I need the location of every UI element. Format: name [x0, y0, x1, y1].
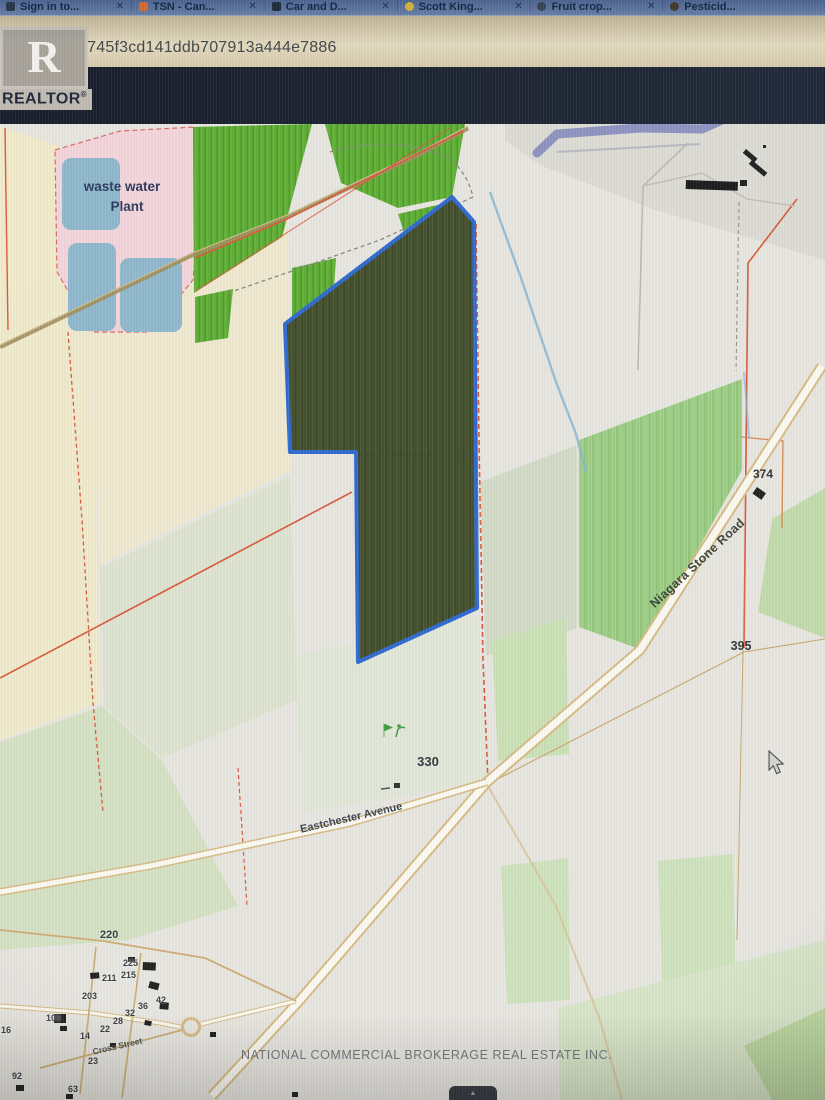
tab-favicon-icon	[537, 2, 546, 11]
realtor-r-glyph: R	[27, 34, 60, 80]
waste-water-plant-area	[55, 127, 202, 332]
tab-label: Car and D...	[286, 1, 347, 13]
house-number: 23	[88, 1056, 98, 1066]
tab-favicon-icon	[272, 2, 281, 11]
browser-tab[interactable]: Sign in to... ✕	[0, 0, 130, 15]
pond	[120, 258, 182, 332]
browser-tab[interactable]: Scott King... ✕	[399, 0, 529, 15]
lot-number-330: 330	[417, 754, 439, 769]
browser-tab[interactable]: TSN - Can... ✕	[133, 0, 263, 15]
tab-favicon-icon	[6, 2, 15, 11]
browser-url-bar[interactable]: ml?id=4500745f3cd141ddb707913a444e7886	[0, 15, 825, 68]
house-number: 92	[12, 1071, 22, 1081]
waste-water-label-2: Plant	[110, 199, 144, 214]
screen-photo: waste water Plant 374 395 330 Niagara St…	[0, 0, 825, 1100]
tab-favicon-icon	[405, 2, 414, 11]
waste-water-label: waste water	[83, 179, 161, 194]
bottom-collapsed-tab[interactable]: ▲	[449, 1086, 497, 1100]
house-number: 42	[156, 995, 166, 1005]
tab-close-icon[interactable]: ✕	[514, 1, 522, 12]
pond	[68, 243, 116, 331]
house-number: 28	[113, 1016, 123, 1026]
lot-number-374: 374	[753, 467, 773, 481]
realtor-logo-square: R	[0, 27, 88, 89]
house-number: 36	[138, 1001, 148, 1011]
realtor-wordmark-text: REALTOR	[2, 90, 81, 107]
house-number: 225	[123, 958, 138, 968]
map-canvas[interactable]: waste water Plant 374 395 330 Niagara St…	[0, 0, 825, 1100]
house-number: 211	[102, 973, 117, 983]
house-number: 16	[1, 1025, 11, 1035]
tab-close-icon[interactable]: ✕	[116, 1, 124, 12]
lot-number-395: 395	[731, 639, 752, 653]
tab-label: TSN - Can...	[153, 1, 215, 13]
browser-tab-bar: Sign in to... ✕ | TSN - Can... ✕ | Car a…	[0, 0, 825, 15]
browser-tab[interactable]: Car and D... ✕	[266, 0, 396, 15]
tab-favicon-icon	[670, 2, 679, 11]
browser-tab[interactable]: Pesticid...	[664, 0, 794, 15]
house-number: 32	[125, 1008, 135, 1018]
chevron-up-icon: ▲	[470, 1090, 477, 1097]
house-number: 215	[121, 970, 136, 980]
mouse-cursor-icon	[766, 750, 788, 776]
lot-number-220: 220	[100, 929, 118, 941]
tab-label: Fruit crop...	[551, 1, 612, 13]
tab-label: Sign in to...	[20, 1, 79, 13]
registered-symbol: ®	[81, 90, 87, 99]
house-number: 106	[46, 1013, 61, 1023]
tab-close-icon[interactable]: ✕	[381, 1, 389, 12]
tab-close-icon[interactable]: ✕	[647, 1, 655, 12]
house-number: 203	[82, 991, 97, 1001]
pond	[62, 158, 120, 230]
house-number: 22	[100, 1024, 110, 1034]
house-number: 14	[80, 1031, 90, 1041]
tab-favicon-icon	[139, 2, 148, 11]
browser-tab[interactable]: Fruit crop... ✕	[531, 0, 661, 15]
realtor-logo: R REALTOR®	[0, 27, 104, 110]
tab-label: Scott King...	[419, 1, 483, 13]
tab-close-icon[interactable]: ✕	[248, 1, 256, 12]
tab-label: Pesticid...	[684, 1, 735, 13]
browser-toolbar-strip	[0, 67, 825, 124]
realtor-wordmark: REALTOR®	[0, 89, 92, 110]
house-number: 63	[68, 1084, 78, 1094]
brokerage-watermark: NATIONAL COMMERCIAL BROKERAGE REAL ESTAT…	[241, 1048, 612, 1062]
